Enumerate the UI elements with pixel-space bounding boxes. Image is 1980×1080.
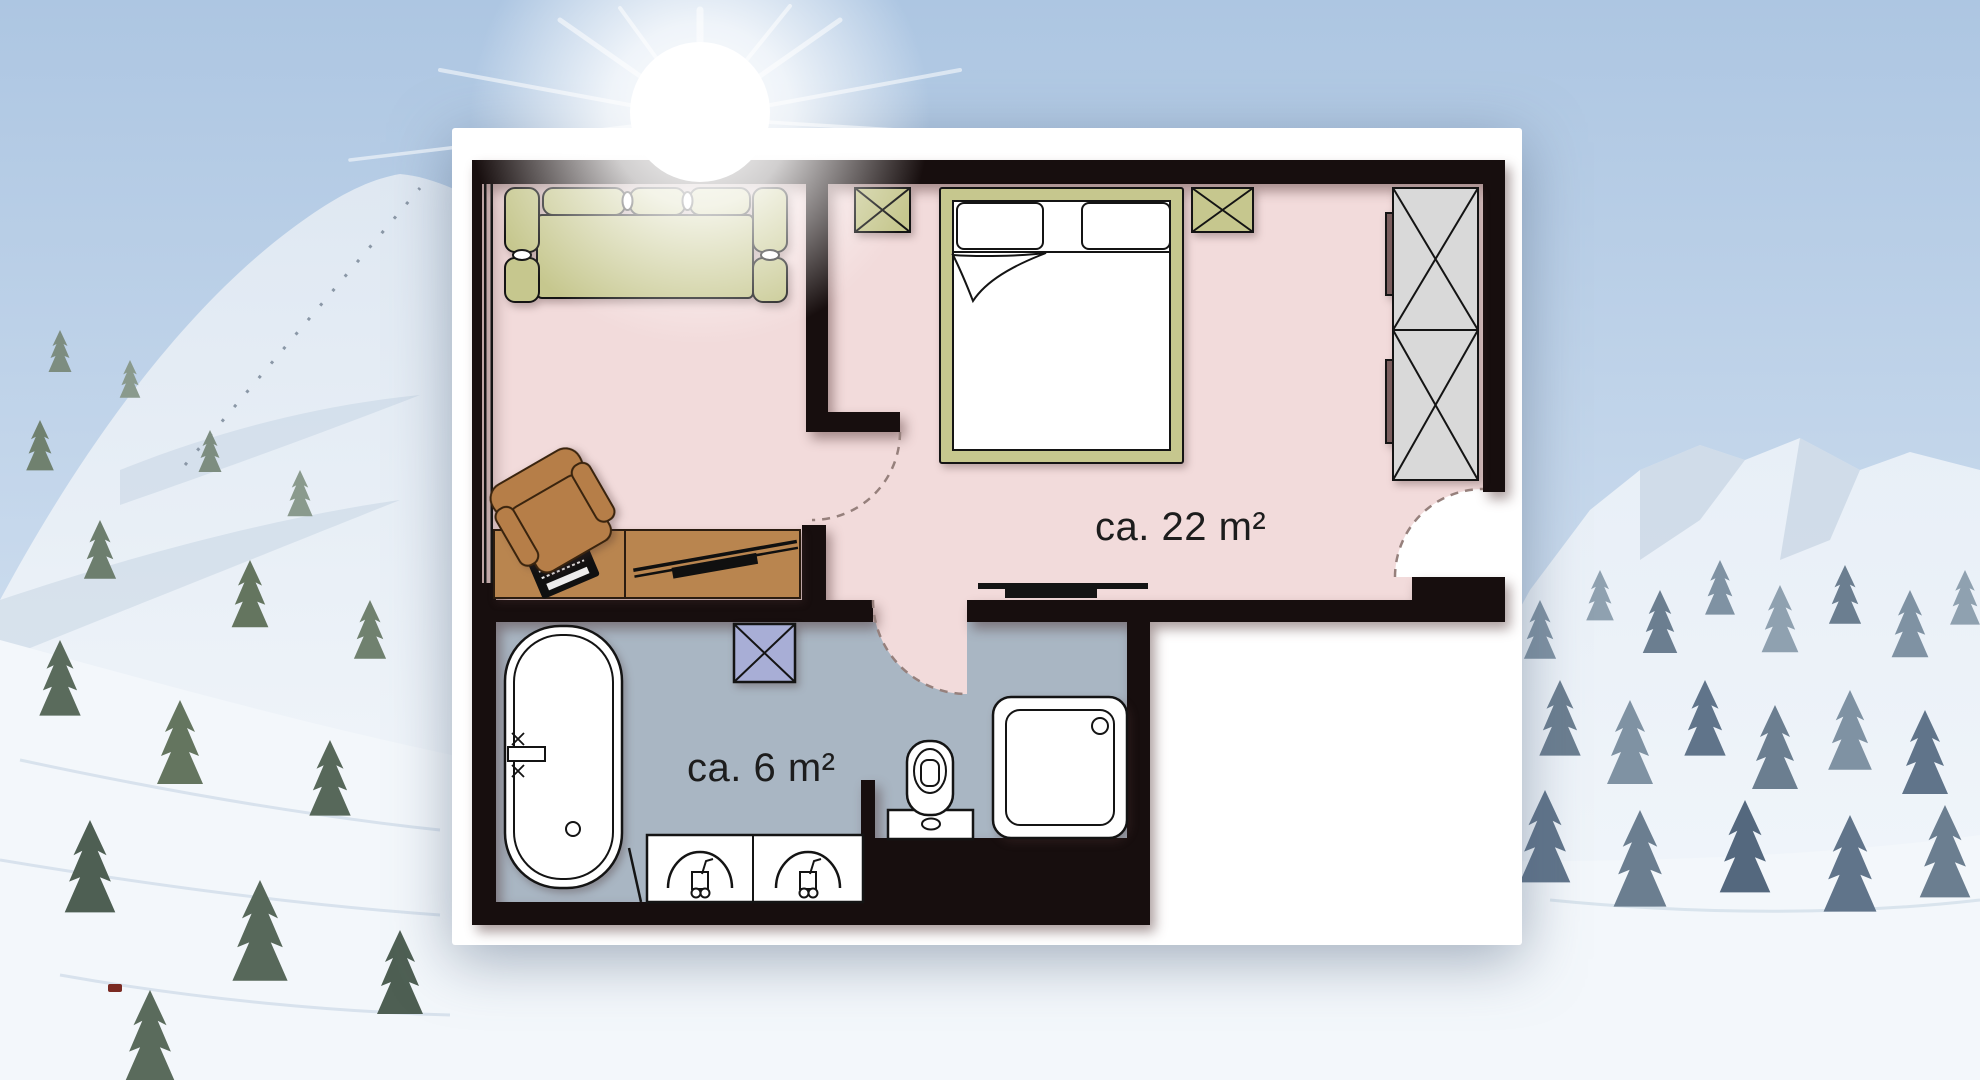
tub-faucet [508,747,545,761]
shower [993,697,1127,838]
wall-bath-left [472,583,496,925]
wardrobe-handle-top [1386,213,1393,295]
nightstand-right [1192,188,1253,232]
wall-hall [802,525,826,622]
wall-right-upper [1483,160,1505,492]
window-line-outer [484,184,487,583]
window-line-inner [491,184,494,583]
wall-divider [806,160,828,432]
wall-bottom-right [967,600,1505,622]
wall-toilet-block [875,838,1150,925]
wardrobe [1386,188,1478,480]
double-washbasin [647,835,863,902]
pillow-left [957,203,1043,249]
ventilation-box [734,624,795,682]
wall-divider-stub [828,412,900,432]
screenshot: ca. 22 m² ca. 6 m² [0,0,1980,1080]
pillow-right [1082,203,1170,249]
bathtub [505,626,622,888]
area-label-living-bedroom: ca. 22 m² [1095,505,1266,549]
floorplan-scene: ca. 22 m² ca. 6 m² [0,0,1980,1080]
area-label-bathroom: ca. 6 m² [687,746,835,790]
wardrobe-handle-bottom [1386,360,1393,443]
double-bed [940,188,1183,463]
nightstand-left [855,188,910,232]
corner-sofa [505,188,787,302]
snow-groomer [108,984,122,992]
wall-top [472,160,1505,184]
wall-left-strip [472,160,482,583]
